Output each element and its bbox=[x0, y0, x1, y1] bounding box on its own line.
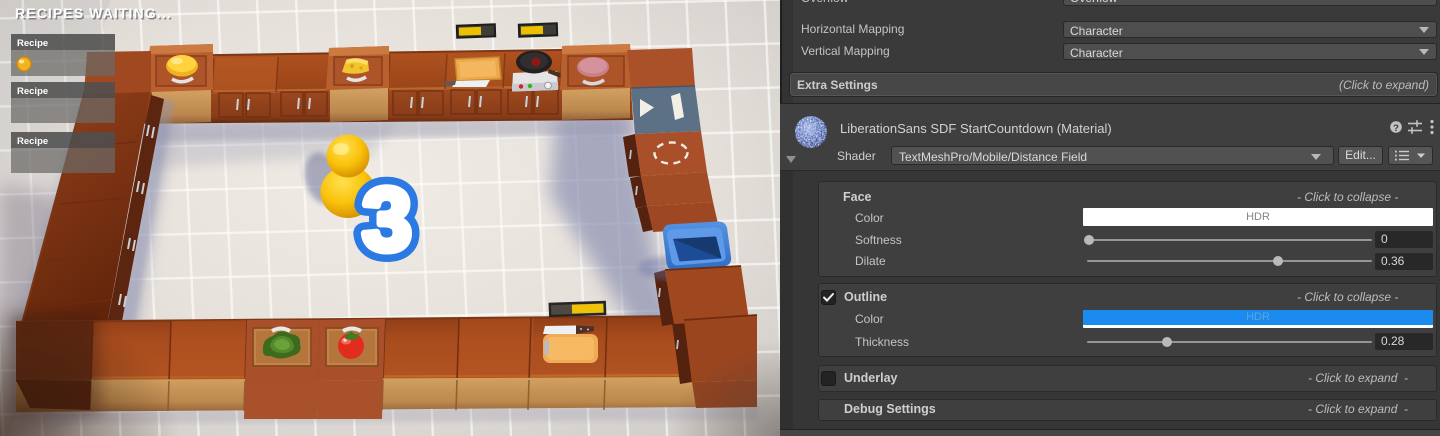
svg-text:Recipe: Recipe bbox=[17, 136, 48, 147]
svg-text:RECIPES WAITING...: RECIPES WAITING... bbox=[15, 5, 172, 21]
svg-text:3: 3 bbox=[362, 169, 412, 269]
svg-text:?: ? bbox=[1393, 123, 1399, 134]
svg-text:Recipe: Recipe bbox=[17, 38, 48, 49]
svg-text:Recipe: Recipe bbox=[17, 86, 48, 97]
